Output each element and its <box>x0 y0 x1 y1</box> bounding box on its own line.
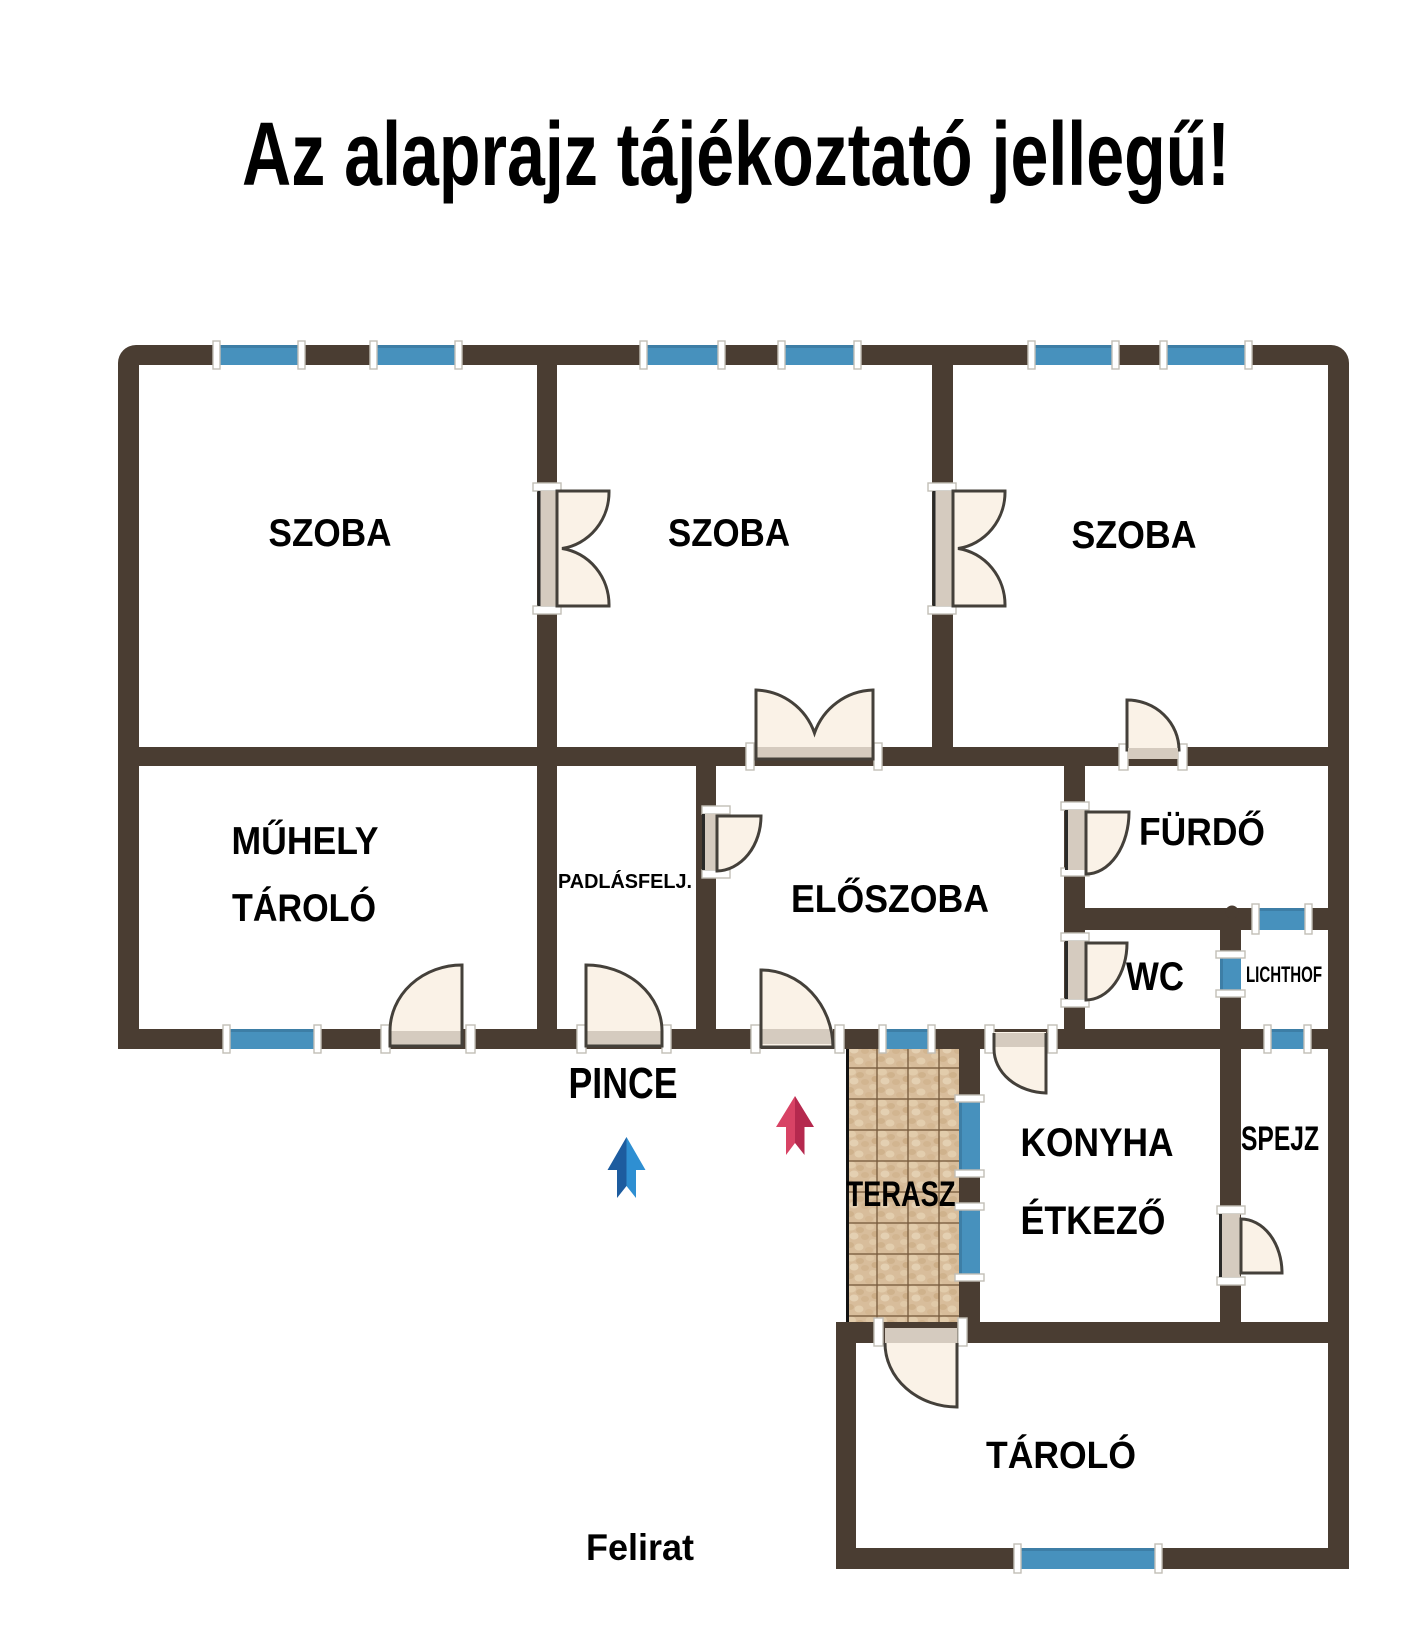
svg-text:TÁROLÓ: TÁROLÓ <box>232 886 376 930</box>
svg-text:KONYHA: KONYHA <box>1021 1121 1174 1165</box>
svg-text:SPEJZ: SPEJZ <box>1241 1120 1319 1158</box>
svg-text:ELŐSZOBA: ELŐSZOBA <box>791 877 989 921</box>
svg-text:WC: WC <box>1126 955 1184 999</box>
svg-text:PINCE: PINCE <box>569 1059 678 1108</box>
svg-text:Az alaprajz tájékoztató jelleg: Az alaprajz tájékoztató jellegű! <box>242 105 1230 205</box>
svg-text:SZOBA: SZOBA <box>1072 514 1197 557</box>
svg-text:TÁROLÓ: TÁROLÓ <box>986 1433 1136 1477</box>
svg-text:PADLÁSFELJ.: PADLÁSFELJ. <box>558 870 692 893</box>
svg-text:FÜRDŐ: FÜRDŐ <box>1139 810 1265 854</box>
svg-text:MŰHELY: MŰHELY <box>232 819 379 863</box>
svg-text:SZOBA: SZOBA <box>668 512 790 555</box>
svg-text:ÉTKEZŐ: ÉTKEZŐ <box>1021 1197 1166 1243</box>
svg-text:Felirat: Felirat <box>586 1527 694 1568</box>
svg-text:TERASZ: TERASZ <box>847 1175 956 1214</box>
svg-text:SZOBA: SZOBA <box>269 512 392 555</box>
svg-text:LICHTHOF: LICHTHOF <box>1246 962 1322 987</box>
